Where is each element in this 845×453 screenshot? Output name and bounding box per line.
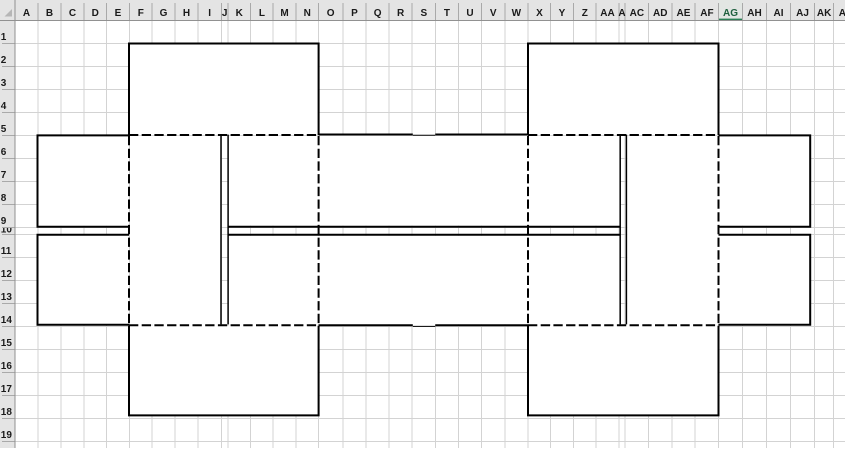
svg-text:8: 8 xyxy=(1,193,7,204)
svg-text:A: A xyxy=(618,8,625,19)
svg-text:U: U xyxy=(466,8,473,19)
svg-text:G: G xyxy=(160,8,168,19)
svg-text:N: N xyxy=(304,8,311,19)
svg-text:K: K xyxy=(236,8,244,19)
svg-text:AK: AK xyxy=(817,8,832,19)
svg-text:3: 3 xyxy=(1,78,7,89)
svg-text:Q: Q xyxy=(374,8,382,19)
svg-text:S: S xyxy=(420,8,427,19)
svg-text:E: E xyxy=(115,8,122,19)
svg-text:P: P xyxy=(351,8,358,19)
svg-text:X: X xyxy=(536,8,543,19)
svg-text:13: 13 xyxy=(1,292,13,303)
svg-text:AH: AH xyxy=(747,8,761,19)
svg-text:6: 6 xyxy=(1,147,7,158)
svg-text:W: W xyxy=(512,8,522,19)
svg-text:D: D xyxy=(92,8,99,19)
svg-text:M: M xyxy=(280,8,288,19)
svg-text:A: A xyxy=(23,8,30,19)
svg-text:J: J xyxy=(222,8,228,19)
svg-text:C: C xyxy=(69,8,76,19)
svg-text:14: 14 xyxy=(1,315,13,326)
svg-text:R: R xyxy=(397,8,405,19)
svg-text:5: 5 xyxy=(1,124,7,135)
svg-text:L: L xyxy=(259,8,265,19)
svg-text:1: 1 xyxy=(1,32,7,43)
svg-text:AA: AA xyxy=(600,8,614,19)
svg-text:15: 15 xyxy=(1,338,13,349)
svg-text:AC: AC xyxy=(630,8,644,19)
svg-text:11: 11 xyxy=(1,246,12,257)
svg-text:AI: AI xyxy=(774,8,784,19)
svg-text:4: 4 xyxy=(1,101,7,112)
svg-text:Y: Y xyxy=(559,8,566,19)
svg-text:17: 17 xyxy=(1,384,13,395)
svg-text:I: I xyxy=(208,8,211,19)
svg-text:F: F xyxy=(138,8,144,19)
svg-text:16: 16 xyxy=(1,361,13,372)
svg-text:AF: AF xyxy=(700,8,713,19)
svg-text:H: H xyxy=(183,8,190,19)
svg-text:AD: AD xyxy=(653,8,667,19)
svg-text:AJ: AJ xyxy=(796,8,809,19)
svg-text:Z: Z xyxy=(582,8,588,19)
svg-text:12: 12 xyxy=(1,269,13,280)
svg-text:7: 7 xyxy=(1,170,7,181)
svg-text:O: O xyxy=(327,8,335,19)
svg-text:19: 19 xyxy=(1,430,13,441)
svg-text:AE: AE xyxy=(677,8,691,19)
svg-text:AL: AL xyxy=(839,8,845,19)
svg-text:V: V xyxy=(490,8,497,19)
svg-text:T: T xyxy=(444,8,450,19)
svg-text:AG: AG xyxy=(723,8,738,19)
svg-text:B: B xyxy=(46,8,53,19)
svg-text:9: 9 xyxy=(1,216,7,227)
svg-text:18: 18 xyxy=(1,407,13,418)
svg-text:2: 2 xyxy=(1,55,7,66)
